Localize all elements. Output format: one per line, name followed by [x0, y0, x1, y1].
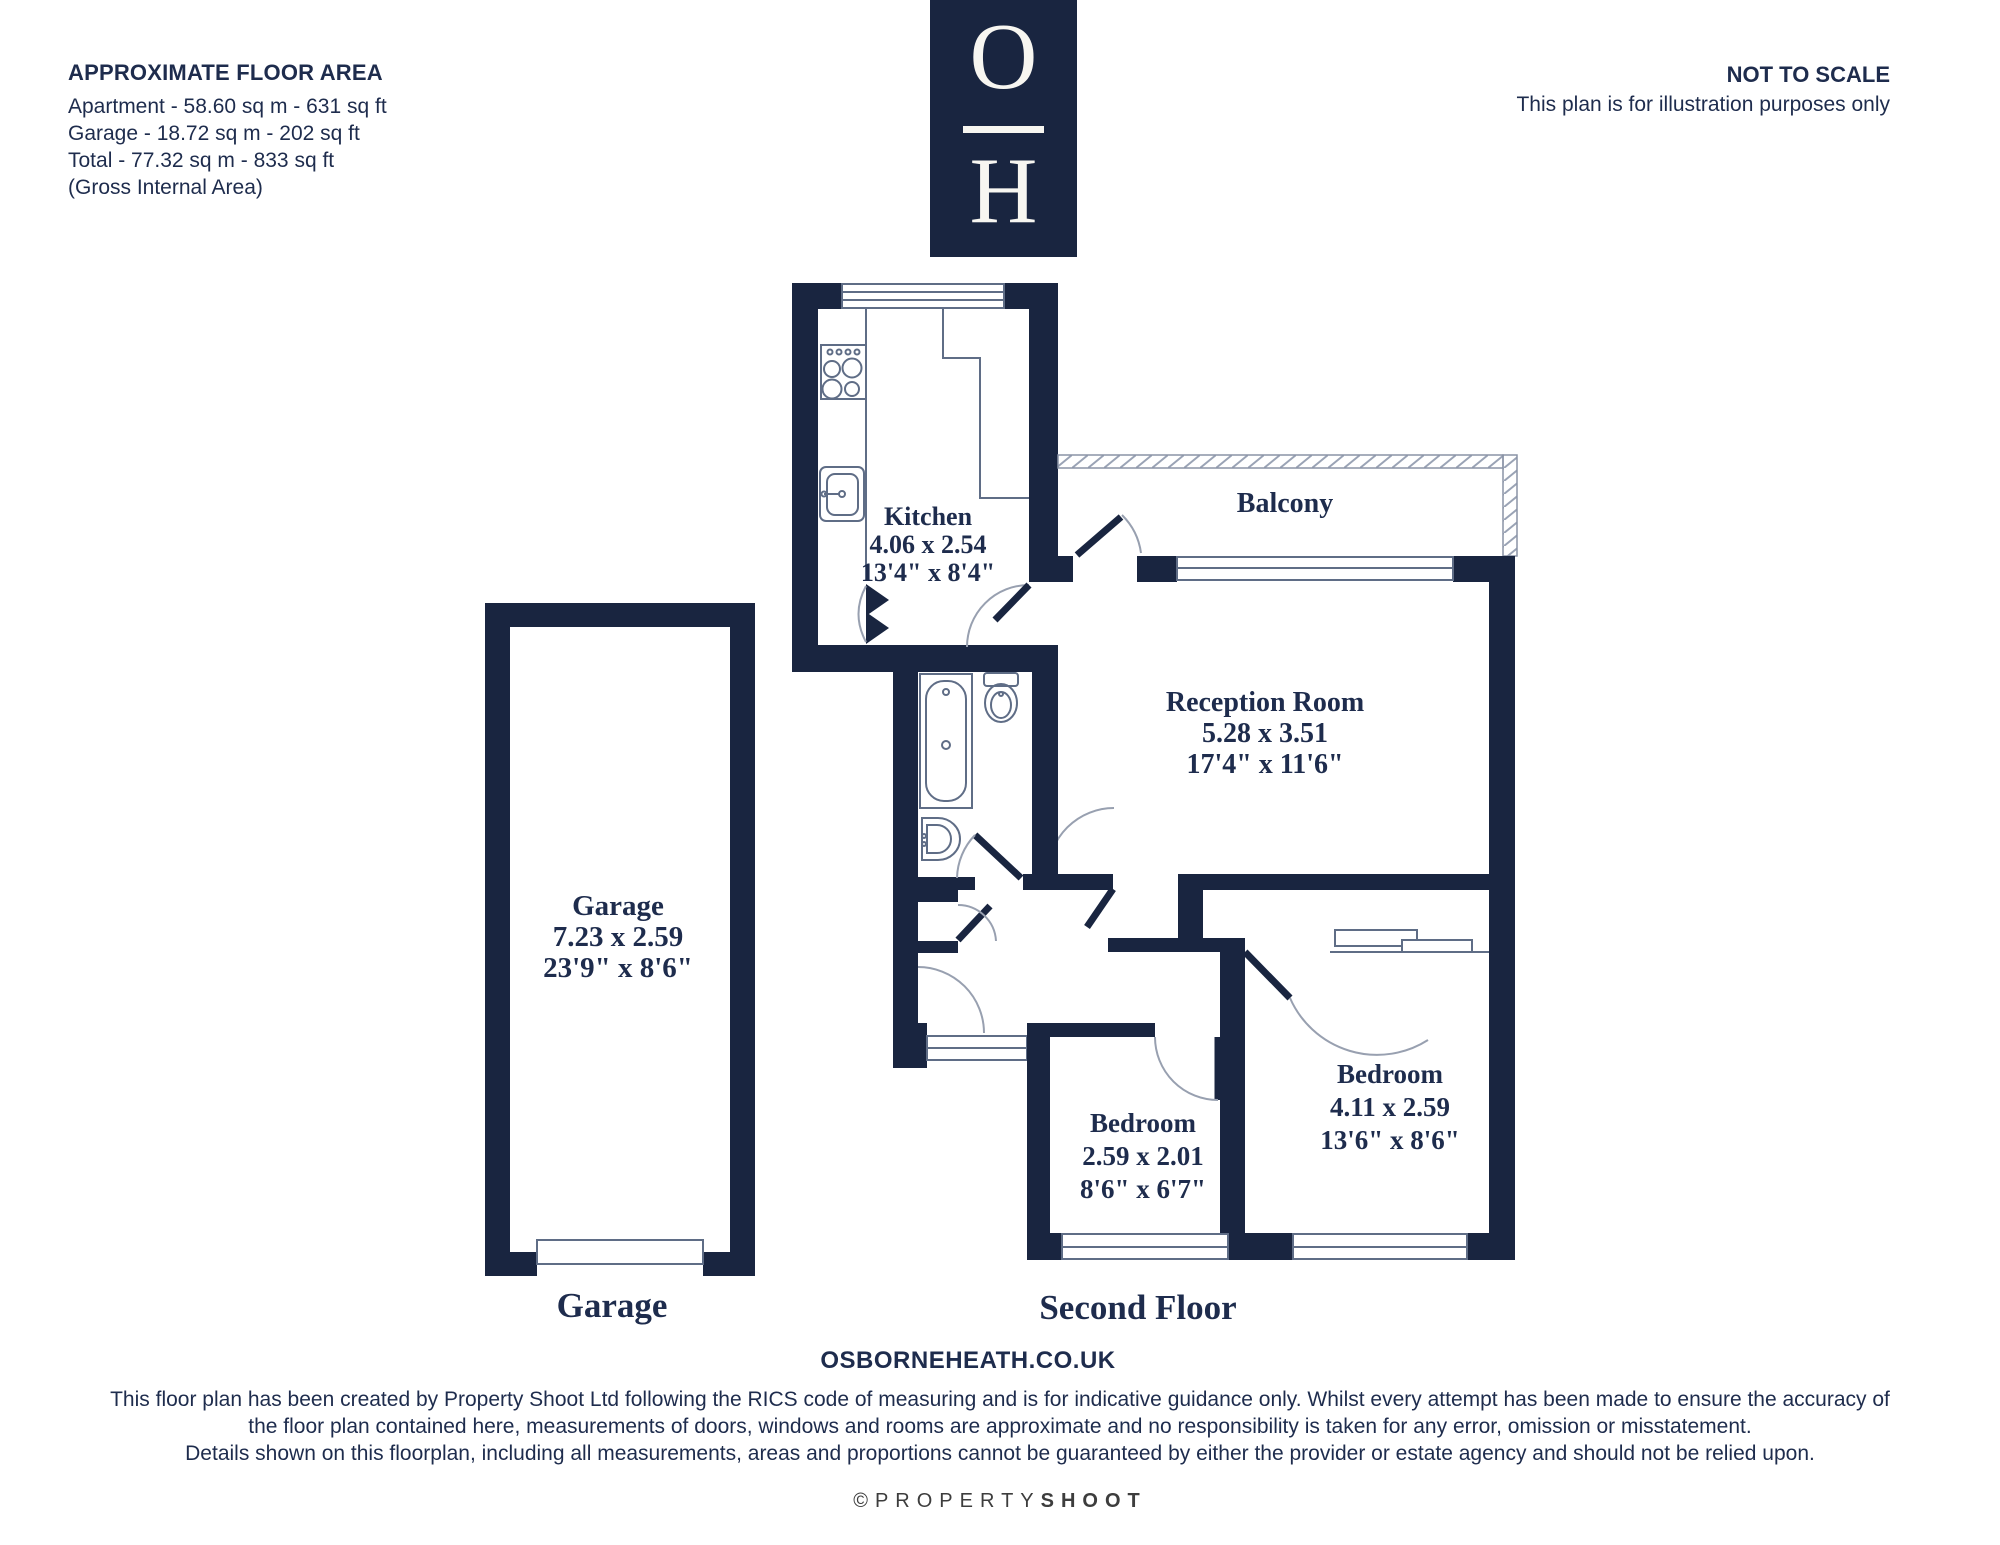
kitchen-bifold-door-icon [859, 584, 890, 644]
website-label: OSBORNEHEATH.CO.UK [768, 1347, 1168, 1375]
bedroom-large-metric: 4.11 x 2.59 [1280, 1091, 1500, 1124]
wardrobe-icon [1330, 930, 1489, 952]
bathroom-door-icon [957, 835, 1021, 878]
reception-window [1177, 557, 1453, 580]
garage-caption: Garage [512, 1286, 712, 1326]
garage-label: Garage 7.23 x 2.59 23'9" x 8'6" [508, 891, 728, 984]
reception-label: Reception Room 5.28 x 3.51 17'4" x 11'6" [1115, 687, 1415, 780]
credit-prefix: ©PROPERTY [853, 1490, 1040, 1512]
bedroom-large-label: Bedroom 4.11 x 2.59 13'6" x 8'6" [1280, 1058, 1500, 1157]
cupboard-door-icon [958, 905, 996, 941]
kitchen-door-icon [967, 585, 1029, 647]
bedroom-small-metric: 2.59 x 2.01 [1033, 1140, 1253, 1173]
balcony-label: Balcony [1185, 489, 1385, 519]
stove-icon [821, 345, 866, 399]
bedroom-small-name: Bedroom [1033, 1107, 1253, 1140]
second-floor-caption: Second Floor [1018, 1288, 1258, 1328]
disclaimer-line-2: the floor plan contained here, measureme… [0, 1413, 2000, 1440]
disclaimer-line-1: This floor plan has been created by Prop… [0, 1386, 2000, 1413]
bathroom-walls [893, 647, 1058, 1068]
bedroom-large-imperial: 13'6" x 8'6" [1280, 1124, 1500, 1157]
reception-imperial: 17'4" x 11'6" [1115, 749, 1415, 780]
reception-metric: 5.28 x 3.51 [1115, 718, 1415, 749]
kitchen-imperial: 13'4" x 8'4" [828, 559, 1028, 587]
garage-name: Garage [508, 891, 728, 922]
kitchen-metric: 4.06 x 2.54 [828, 531, 1028, 559]
entrance-door-icon [918, 967, 984, 1033]
bedroom-small-door-icon [1155, 1037, 1218, 1100]
kitchen-walls [792, 283, 1073, 672]
credit-suffix: SHOOT [1041, 1490, 1147, 1512]
basin-icon [922, 818, 960, 860]
bedroom-large-door-icon [1245, 952, 1428, 1055]
bedroom-large-name: Bedroom [1280, 1058, 1500, 1091]
kitchen-window [842, 284, 1004, 308]
floorplan-drawing [0, 0, 2000, 1545]
balcony-name: Balcony [1185, 489, 1385, 519]
garage-imperial: 23'9" x 8'6" [508, 953, 728, 984]
bedroom-small-label: Bedroom 2.59 x 2.01 8'6" x 6'7" [1033, 1107, 1253, 1206]
floorplan-page: APPROXIMATE FLOOR AREA Apartment - 58.60… [0, 0, 2000, 1545]
toilet-icon [984, 673, 1018, 722]
bedroom-small-imperial: 8'6" x 6'7" [1033, 1173, 1253, 1206]
balcony-door-icon [1077, 515, 1141, 555]
propertyshoot-credit: ©PROPERTYSHOOT [0, 1490, 2000, 1513]
hall-window [927, 1036, 1027, 1060]
garage-door [537, 1240, 703, 1264]
bathtub-icon [920, 674, 972, 808]
kitchen-name: Kitchen [828, 503, 1028, 531]
reception-name: Reception Room [1115, 687, 1415, 718]
disclaimer-line-3: Details shown on this floorplan, includi… [0, 1440, 2000, 1467]
kitchen-label: Kitchen 4.06 x 2.54 13'4" x 8'4" [828, 503, 1028, 587]
disclaimer: This floor plan has been created by Prop… [0, 1386, 2000, 1467]
garage-metric: 7.23 x 2.59 [508, 922, 728, 953]
